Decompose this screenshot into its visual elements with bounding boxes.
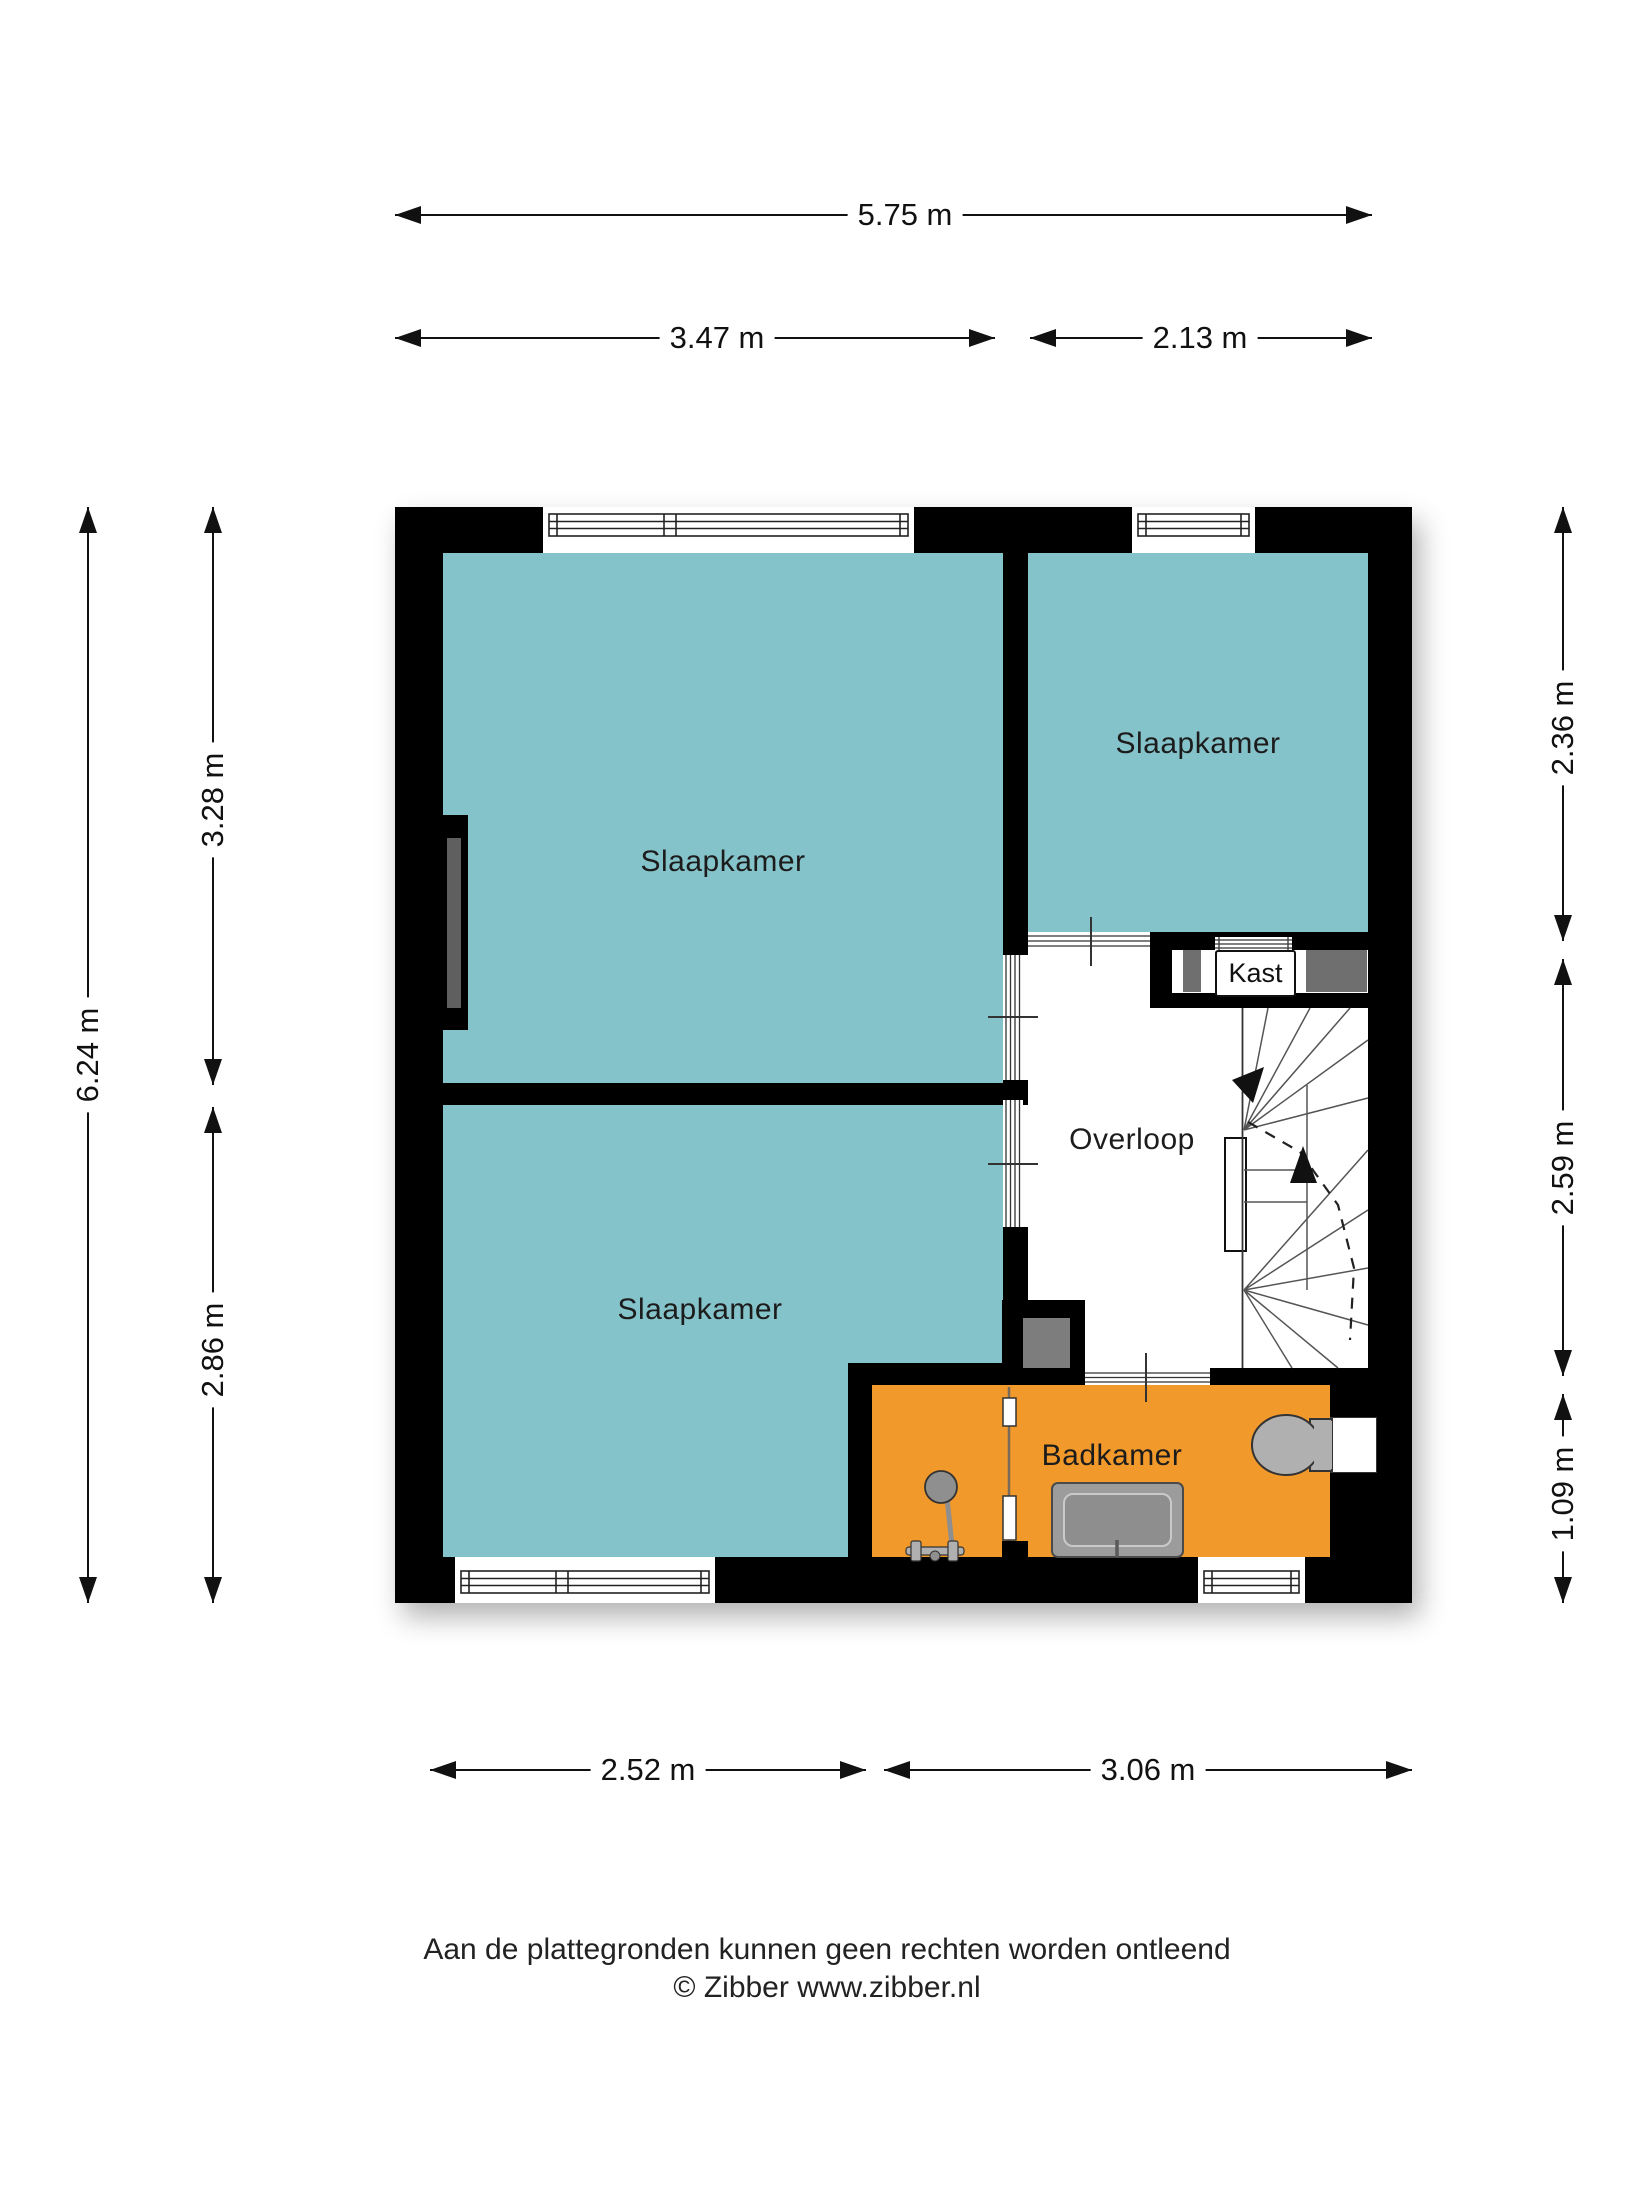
window-glass-bathroom bbox=[1204, 1571, 1299, 1593]
footer-disclaimer: Aan de plattegronden kunnen geen rechten… bbox=[423, 1933, 1230, 1967]
dim-left-total: 6.24 m bbox=[70, 998, 106, 1113]
toilet bbox=[1252, 1415, 1332, 1475]
room-label-bedroom-bl: Slaapkamer bbox=[617, 1293, 782, 1327]
stairs-arrow-up bbox=[1232, 1067, 1264, 1103]
floorplan-page: Slaapkamer Slaapkamer Slaapkamer Overloo… bbox=[0, 0, 1650, 2200]
door-slats-closet bbox=[1215, 937, 1292, 950]
room-label-closet: Kast bbox=[1228, 958, 1282, 989]
dim-left-lower: 2.86 m bbox=[195, 1293, 231, 1408]
dimension-arrowheads bbox=[79, 206, 1572, 1779]
dim-top-total: 5.75 m bbox=[848, 197, 963, 233]
dim-bottom-left: 2.52 m bbox=[591, 1752, 706, 1788]
dim-top-left: 3.47 m bbox=[660, 320, 775, 356]
door-slats-bedroom-bl bbox=[988, 1100, 1038, 1227]
room-label-landing: Overloop bbox=[1069, 1123, 1195, 1157]
door-slats-bathroom bbox=[1085, 1353, 1210, 1402]
dim-top-right: 2.13 m bbox=[1143, 320, 1258, 356]
window-glass-top-left bbox=[549, 514, 908, 536]
window-glass-top-right bbox=[1138, 514, 1249, 536]
dim-right-middle: 2.59 m bbox=[1545, 1111, 1581, 1226]
shower-head bbox=[925, 1471, 957, 1503]
dimension-lines bbox=[88, 215, 1563, 1770]
room-label-bedroom-tl: Slaapkamer bbox=[640, 845, 805, 879]
room-label-bedroom-tr: Slaapkamer bbox=[1115, 727, 1280, 761]
room-label-bathroom: Badkamer bbox=[1042, 1439, 1183, 1473]
window-glass-bottom-left bbox=[461, 1571, 709, 1593]
dim-left-upper: 3.28 m bbox=[195, 743, 231, 858]
dim-right-upper: 2.36 m bbox=[1545, 671, 1581, 786]
stair-treads bbox=[1244, 1008, 1368, 1368]
plan-linework bbox=[0, 0, 1650, 2200]
stairs bbox=[1232, 1008, 1368, 1368]
door-slats-bedroom-tr bbox=[1028, 917, 1150, 966]
shower-screen bbox=[1003, 1387, 1016, 1541]
bathtub bbox=[1052, 1483, 1183, 1557]
stairs-arrow-down bbox=[1290, 1146, 1317, 1183]
dim-bottom-right: 3.06 m bbox=[1091, 1752, 1206, 1788]
footer-copyright: © Zibber www.zibber.nl bbox=[673, 1971, 980, 2005]
dim-right-lower: 1.09 m bbox=[1545, 1437, 1581, 1552]
shower bbox=[906, 1471, 964, 1561]
door-slats-bedroom-tl bbox=[988, 955, 1038, 1080]
room-label-closet-box: Kast bbox=[1215, 950, 1296, 997]
